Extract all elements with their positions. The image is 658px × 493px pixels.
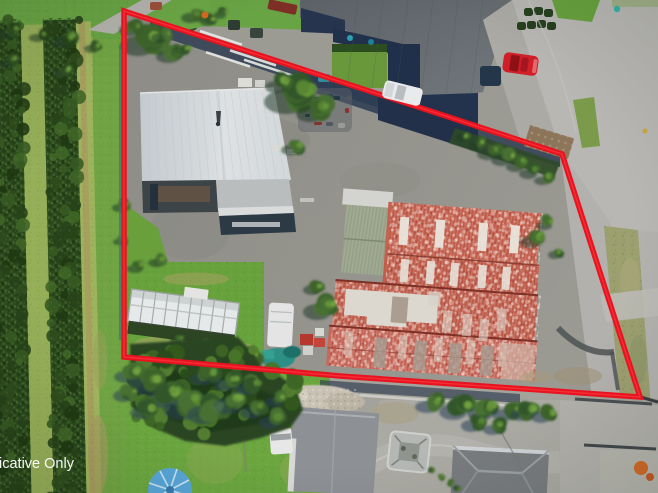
- svg-text:icative Only: icative Only: [0, 456, 75, 472]
